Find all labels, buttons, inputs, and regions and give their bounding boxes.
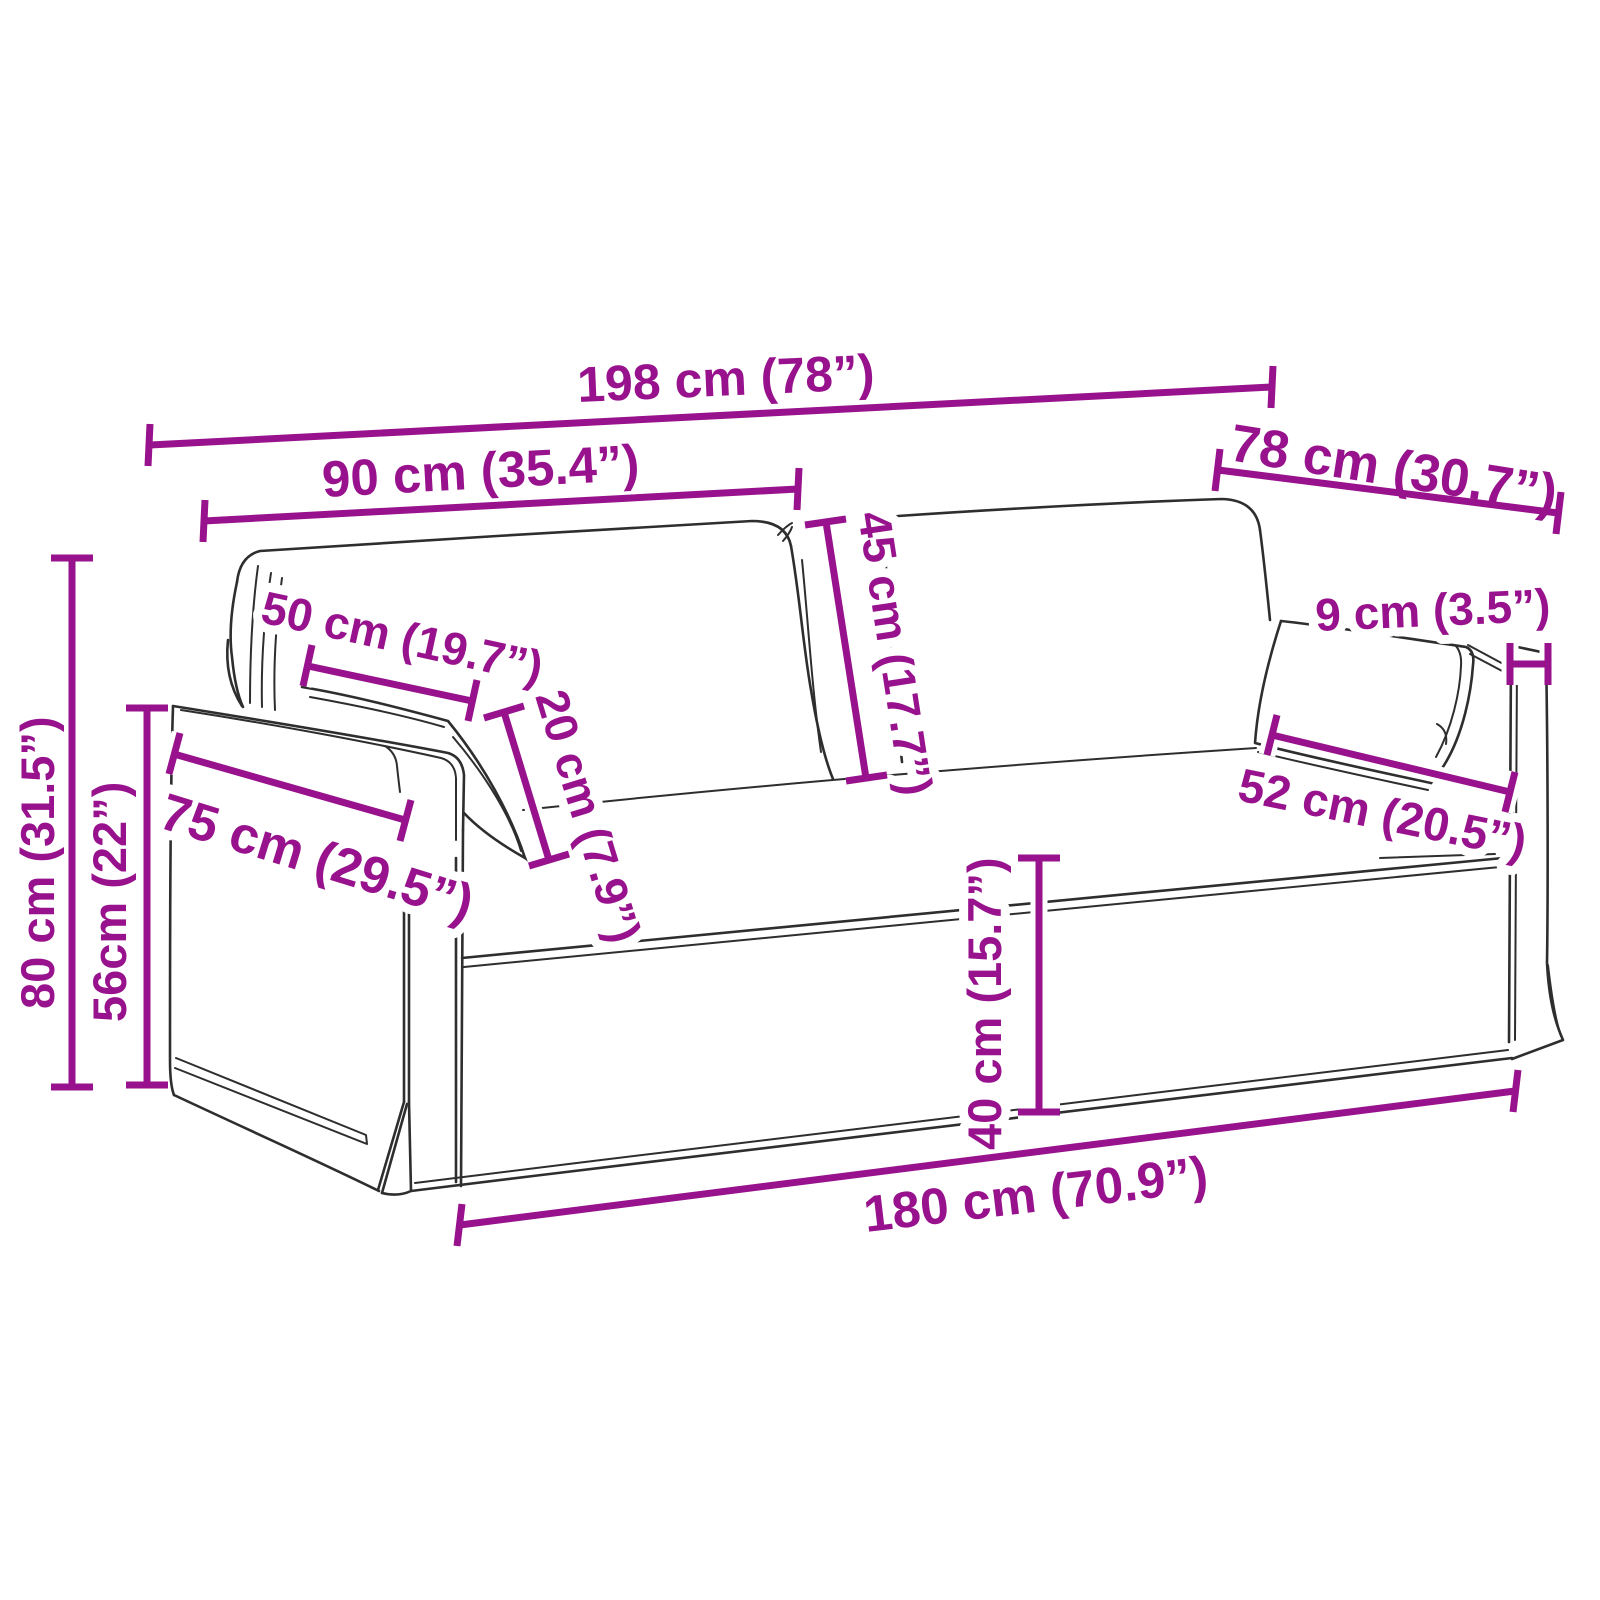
svg-text:80 cm (31.5”): 80 cm (31.5”) bbox=[11, 716, 64, 1009]
svg-text:40 cm (15.7”): 40 cm (15.7”) bbox=[958, 857, 1011, 1150]
svg-text:9 cm (3.5”): 9 cm (3.5”) bbox=[1314, 579, 1551, 641]
svg-text:56cm (22”): 56cm (22”) bbox=[83, 782, 136, 1022]
